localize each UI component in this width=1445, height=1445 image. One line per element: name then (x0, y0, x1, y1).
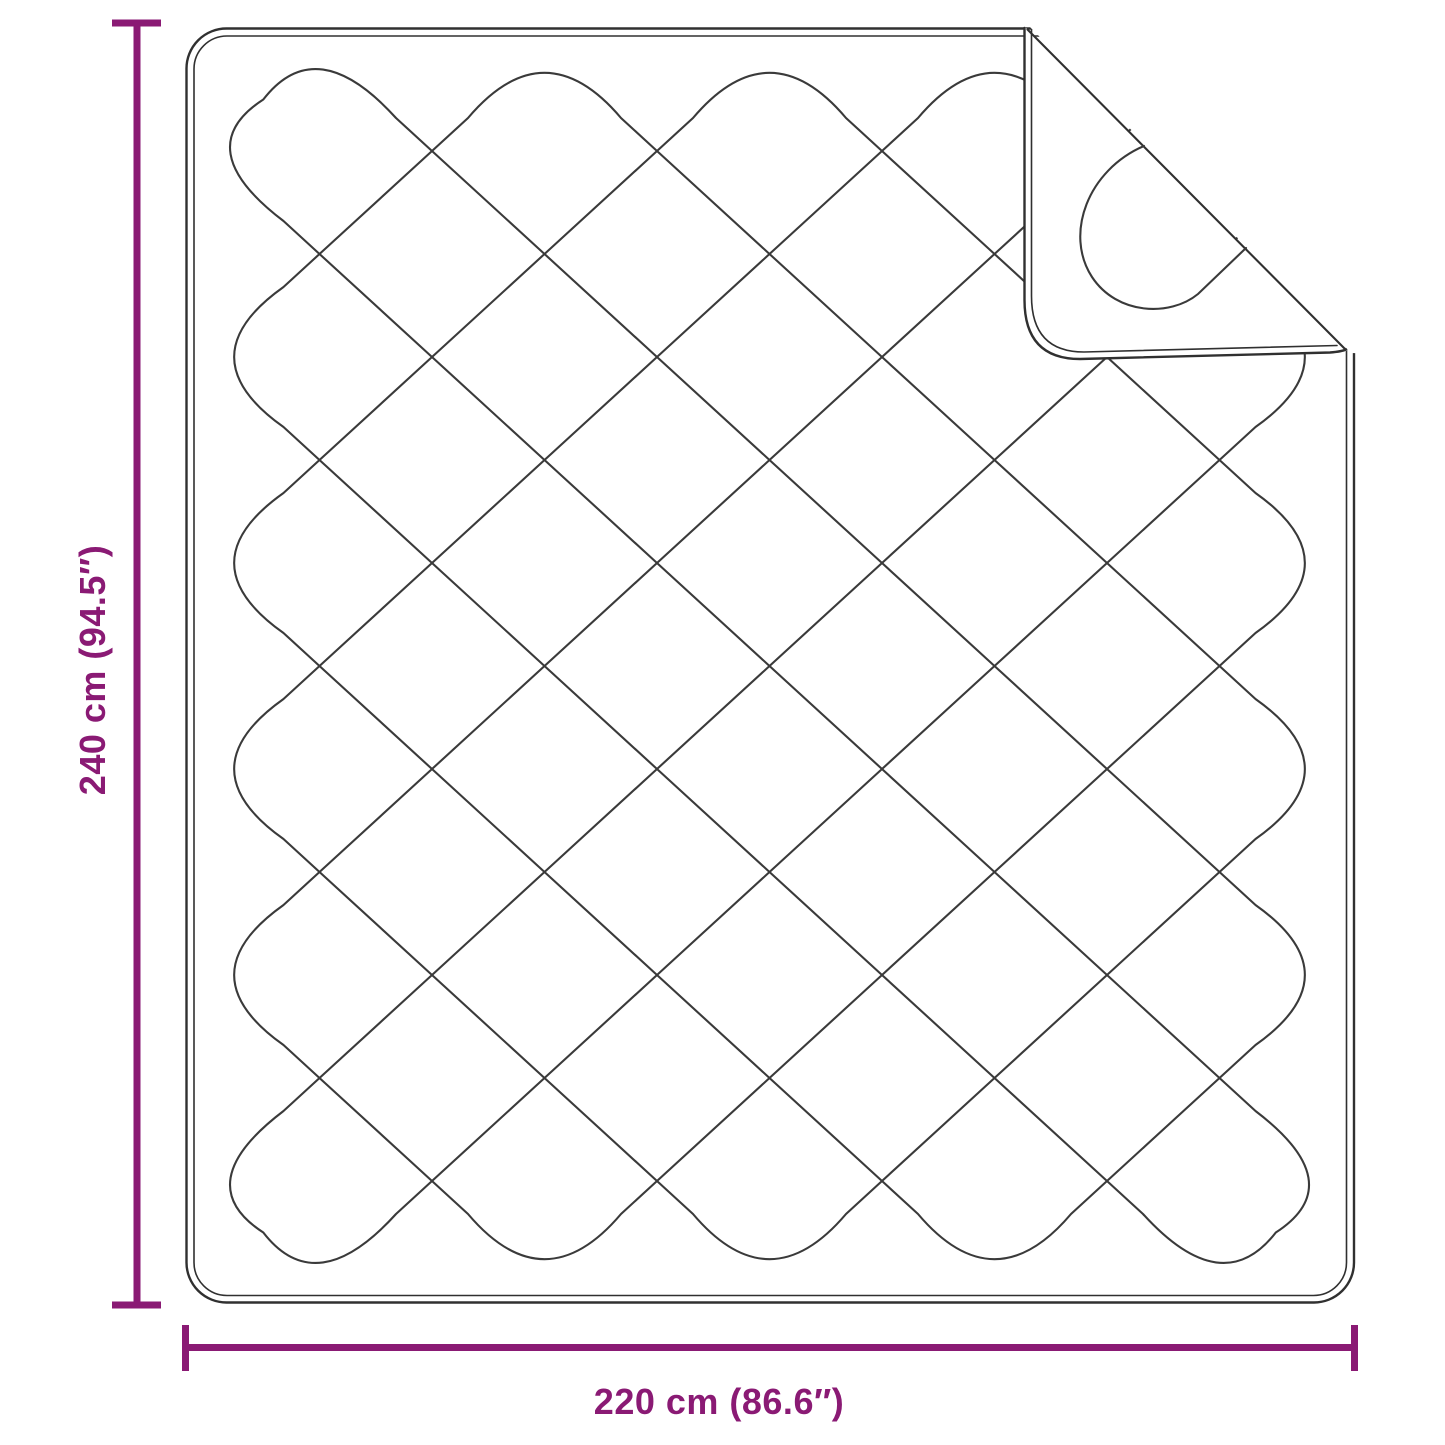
horizontal-dimension-bar (182, 1344, 1358, 1351)
height-dimension-label: 240 cm (94.5″) (72, 545, 114, 795)
horizontal-dimension-left-cap (182, 1325, 189, 1371)
vertical-dimension-bar (134, 22, 141, 1308)
vertical-dimension-top-cap (112, 20, 161, 27)
vertical-dimension-bottom-cap (112, 1302, 161, 1309)
width-dimension-label: 220 cm (86.6″) (594, 1381, 844, 1423)
horizontal-dimension-right-cap (1351, 1325, 1358, 1371)
blanket-diagram-canvas (0, 0, 1445, 1445)
horizontal-dimension-line (182, 1325, 1358, 1371)
vertical-dimension-line (112, 20, 161, 1309)
